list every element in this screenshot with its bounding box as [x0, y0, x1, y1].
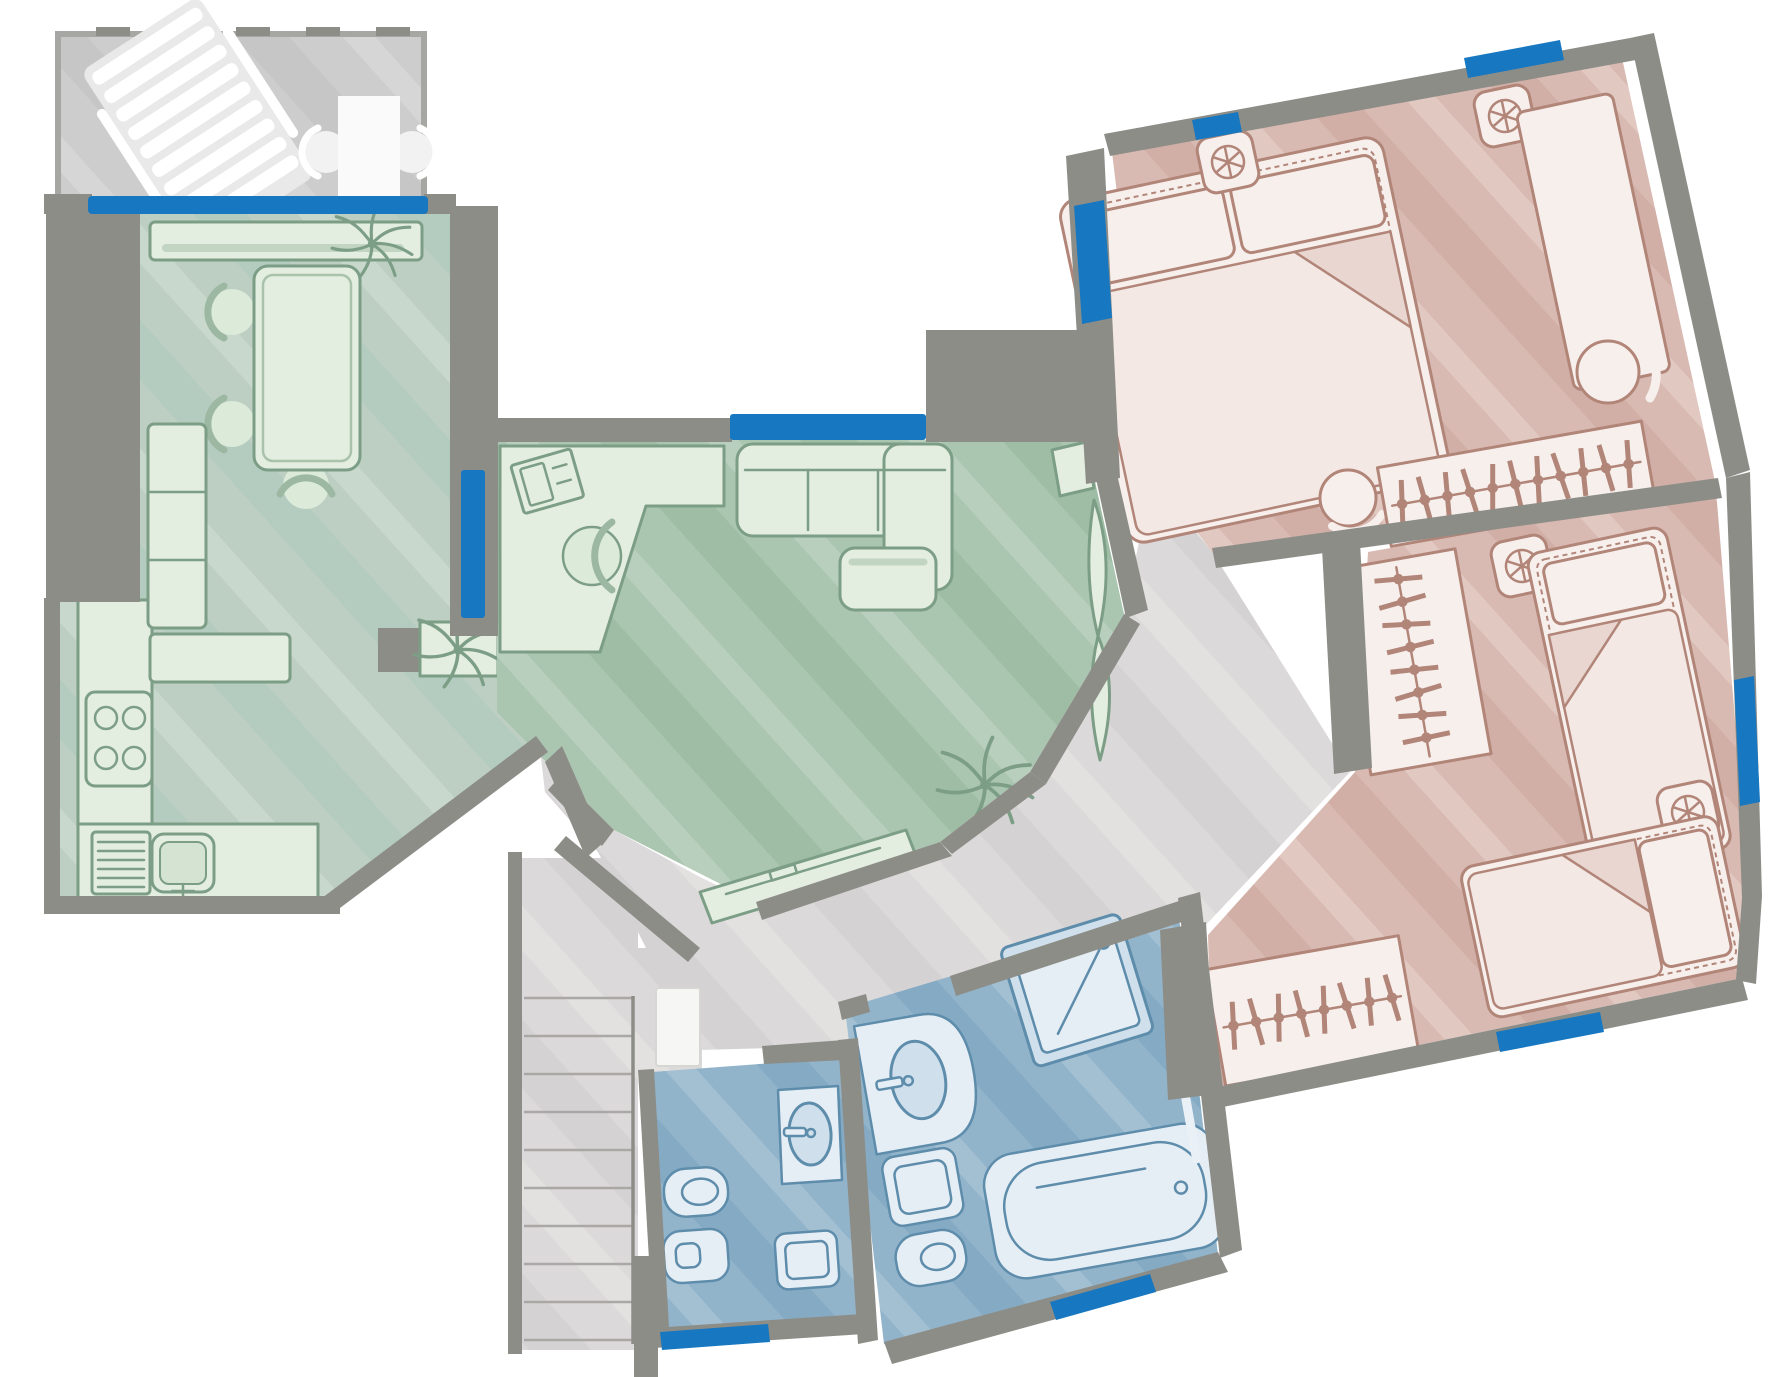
wc-washbasin-icon [778, 1086, 842, 1184]
window-dining-living [461, 470, 485, 618]
tall-cabinet-icon [148, 424, 206, 628]
ceiling-fan-icon [1195, 129, 1261, 195]
stove-icon [86, 692, 152, 786]
bidet-icon [662, 1166, 729, 1218]
window-balcony-door [88, 196, 428, 214]
room-wc [652, 1058, 858, 1342]
window-living [730, 414, 926, 440]
doormat-icon [656, 988, 700, 1066]
hallway-stairs-floor [522, 858, 638, 1350]
bathroom-washing-machine-icon [880, 1146, 965, 1228]
floor-plan-canvas: Apartment floor plan (top view, hand-dra… [0, 0, 1786, 1377]
sideboard-icon [150, 222, 422, 260]
bistro-table-icon [338, 96, 400, 208]
dining-table-icon [254, 266, 360, 470]
coffee-table-icon [840, 548, 936, 610]
counter-cabinet-icon [150, 634, 290, 682]
washing-machine-icon [774, 1230, 840, 1290]
pillar [378, 628, 420, 672]
floor-plan-svg [0, 0, 1786, 1377]
toilet-icon [662, 1228, 729, 1284]
